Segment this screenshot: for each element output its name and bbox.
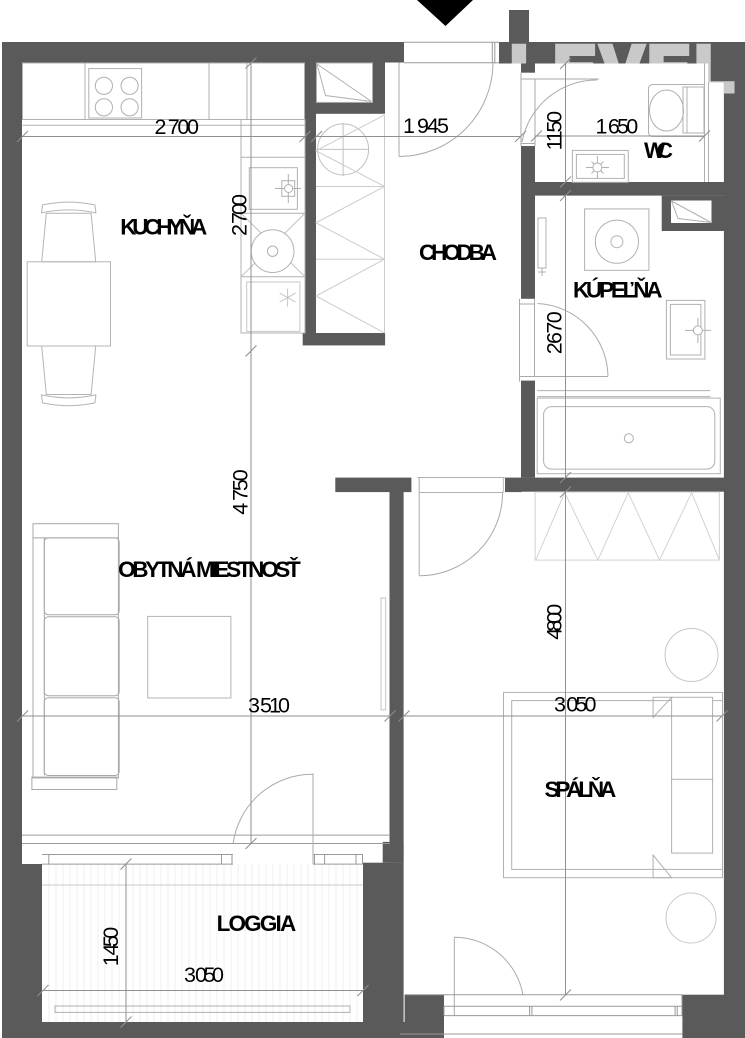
svg-text:1 945: 1 945: [403, 114, 449, 138]
svg-text:LOGGIA: LOGGIA: [217, 911, 297, 936]
svg-text:2 700: 2 700: [155, 115, 200, 139]
svg-text:3 050: 3 050: [554, 692, 597, 716]
svg-text:SPÁLŇA: SPÁLŇA: [545, 777, 617, 802]
svg-text:3 050: 3 050: [184, 963, 224, 987]
svg-text:1150: 1150: [543, 111, 567, 151]
svg-text:4 750: 4 750: [229, 469, 253, 514]
svg-text:CHODBA: CHODBA: [419, 240, 497, 265]
svg-text:2670: 2670: [543, 311, 567, 354]
svg-text:1 450: 1 450: [99, 927, 123, 967]
svg-text:KÚPEĽŇA: KÚPEĽŇA: [573, 278, 663, 303]
svg-text:OBYTNÁ MIESTNOSŤ: OBYTNÁ MIESTNOSŤ: [118, 557, 301, 582]
svg-text:1 650: 1 650: [596, 115, 639, 139]
svg-text:WC: WC: [644, 138, 673, 163]
svg-text:3 510: 3 510: [248, 694, 290, 718]
svg-text:2 700: 2 700: [228, 194, 252, 236]
svg-text:KUCHYŇA: KUCHYŇA: [120, 214, 207, 239]
svg-text:4800: 4800: [543, 604, 567, 640]
